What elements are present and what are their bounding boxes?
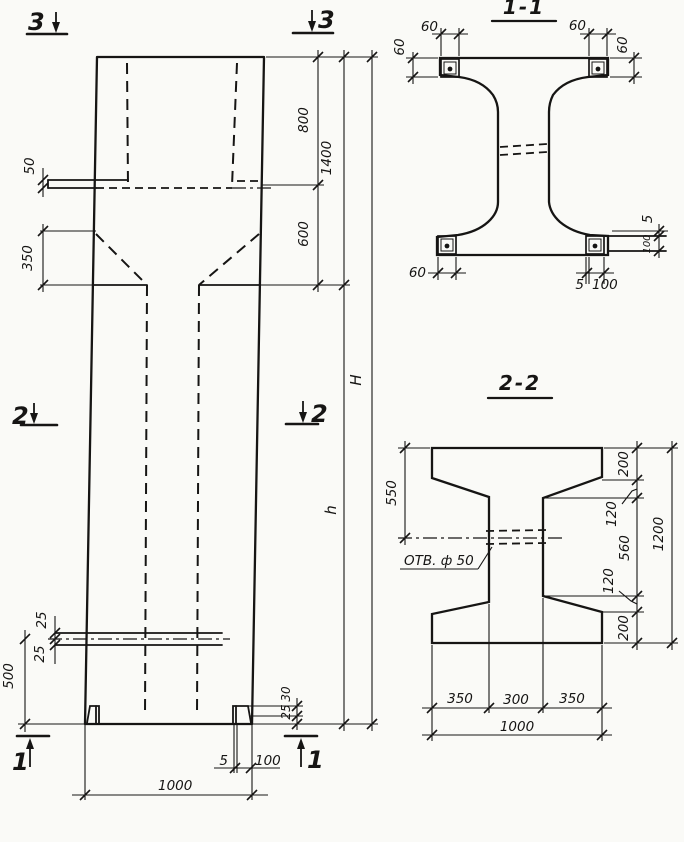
bottom-hole [48, 633, 230, 645]
s22-dim-lines [398, 441, 678, 741]
side-ledge [48, 180, 272, 188]
marker-1-label: 1 [12, 748, 29, 776]
s22-hole-label: ОТВ. ф 50 [404, 553, 474, 569]
s11-dim-tr-60v: 60 [615, 36, 631, 53]
dim-width-1000: 1000 [158, 778, 192, 794]
section-1-1-outline [437, 58, 608, 255]
dim-hole-25-dn: 25 [32, 645, 48, 662]
taper-hidden-left [96, 234, 147, 285]
s11-dim-r-100: 100 [642, 234, 653, 253]
s22-dim-350-r: 350 [559, 691, 585, 707]
dim-hole-25-up: 25 [34, 611, 50, 628]
dim-taper-350: 350 [20, 245, 36, 271]
s22-dim-300: 300 [503, 692, 529, 708]
s22-hole-hidden [486, 543, 546, 544]
drawing-sheet: 50 350 800 1400 600 h H 25 25 500 30 25 … [0, 0, 684, 842]
section-marker-1-left: 1 [12, 736, 49, 776]
section-marker-3-right: 3 [293, 6, 335, 34]
dim-hole-500: 500 [1, 663, 17, 689]
column-elevation-view: 50 350 800 1400 600 h H 25 25 500 30 25 … [1, 6, 378, 800]
shaft-hidden-left [145, 285, 147, 716]
dim-plate-100: 100 [255, 753, 281, 769]
s11-dim-tr-60: 60 [569, 18, 586, 34]
shaft-hidden-right [197, 285, 199, 716]
section-marker-1-right: 1 [285, 736, 324, 774]
s22-dim-560: 560 [617, 535, 633, 561]
s22-dim-120-bot: 120 [601, 568, 617, 594]
s22-dim-200-top: 200 [616, 451, 632, 477]
section-2-2-outline [432, 448, 602, 643]
s22-dim-1000: 1000 [500, 719, 534, 735]
foot-left [87, 706, 99, 723]
s22-dim-texts: 550 200 120 560 120 200 1200 350 300 350… [384, 451, 667, 735]
section-2-2-title: 2-2 [499, 371, 541, 395]
cap-hidden-left [127, 63, 128, 186]
section-1-1-title: 1-1 [503, 0, 545, 19]
taper-hidden-right [199, 234, 259, 285]
dim-top-1400: 1400 [319, 141, 335, 175]
dim-height-h: h [322, 505, 340, 515]
embedded-plates [438, 59, 607, 254]
s11-dim-tl-60: 60 [421, 19, 438, 35]
s11-hole-hidden [500, 152, 547, 155]
foot-right [233, 706, 251, 723]
dim-foot-30: 30 [279, 686, 293, 702]
section-2-2-view: 2-2 ОТВ. ф 50 [384, 371, 678, 741]
s11-dim-bl-60: 60 [409, 265, 426, 281]
dim-height-H: H [347, 374, 365, 385]
dim-foot-25: 25 [279, 704, 293, 719]
s11-dim-r-5: 5 [640, 215, 656, 224]
column-outline [85, 57, 264, 724]
section-1-1-view: 1-1 [392, 0, 668, 293]
s22-dim-120-top: 120 [604, 501, 620, 527]
s22-dim-1200: 1200 [651, 517, 667, 551]
section-marker-2-right: 2 [286, 400, 328, 428]
section-marker-2-left: 2 [12, 402, 57, 430]
marker-1-label: 1 [307, 746, 324, 774]
s11-dim-tl-60v: 60 [392, 38, 408, 55]
s22-dim-550: 550 [384, 480, 400, 506]
s22-dim-200-bot: 200 [616, 615, 632, 641]
section-marker-3-left: 3 [27, 8, 67, 36]
dim-ledge-50: 50 [22, 157, 38, 174]
s22-hole-hidden [486, 530, 546, 531]
marker-2-label: 2 [311, 400, 328, 428]
cap-hidden-right [232, 63, 237, 186]
s11-hole-hidden [500, 144, 547, 147]
dim-plate-5: 5 [219, 753, 228, 769]
drawing-canvas: 50 350 800 1400 600 h H 25 25 500 30 25 … [0, 0, 684, 842]
s11-dim-bb-5: 5 [575, 277, 584, 293]
elevation-dim-texts: 50 350 800 1400 600 h H 25 25 500 30 25 … [1, 107, 365, 794]
marker-3-label: 3 [28, 8, 45, 36]
dim-neck-600: 600 [296, 221, 312, 247]
dim-top-800: 800 [296, 107, 312, 133]
s22-dim-350-l: 350 [447, 691, 473, 707]
marker-3-label: 3 [318, 6, 335, 34]
s11-dim-bb-100: 100 [592, 277, 618, 293]
